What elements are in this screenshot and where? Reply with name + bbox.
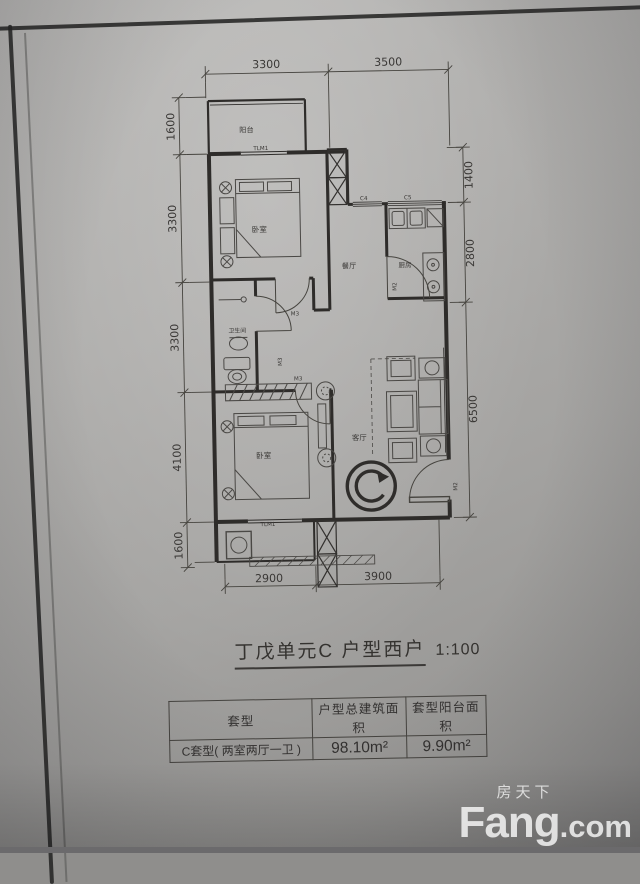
room-label-kitchen: 厨房 [398, 260, 412, 269]
label-tlm1-top: TLM1 [252, 146, 268, 152]
dim-bottom-2900: 2900 [255, 572, 283, 586]
room-label-bathroom: 卫生间 [228, 326, 246, 334]
label-tlm1-bottom: TLM1 [259, 522, 275, 528]
dim-left-4100: 4100 [170, 444, 184, 472]
label-c5: C5 [404, 195, 412, 201]
fang-watermark: 房天下 Fang.com [459, 785, 632, 845]
plan-scale: 1:100 [435, 641, 480, 659]
dim-left-1600b: 1600 [172, 532, 186, 560]
cell-total-area: 98.10m² [313, 736, 407, 760]
room-label-bedroom-top: 卧室 [252, 224, 268, 234]
bedroom-top-furniture [219, 178, 301, 268]
room-label-balcony-top: 阳台 [239, 125, 254, 134]
dim-left-3300a: 3300 [166, 205, 180, 233]
photo-background: 3300 3500 1600 3300 3300 4100 1600 1400 … [0, 0, 640, 853]
plan-title: 丁戊单元C 户型西户 [234, 639, 425, 670]
bedroom-bottom-furniture [220, 383, 313, 500]
dim-left-3300b: 3300 [168, 324, 182, 352]
cell-balcony-area: 9.90m² [406, 734, 487, 758]
dim-top-3500: 3500 [374, 55, 402, 69]
dim-left-1600a: 1600 [164, 113, 178, 141]
dim-right-6500: 6500 [467, 395, 481, 423]
fang-watermark-com: .com [560, 809, 632, 844]
room-label-dining: 餐厅 [342, 261, 357, 270]
opening-labels: TLM1 C4 C5 M2 M3 M3 M3 M2 TLM1 [252, 142, 460, 528]
room-label-living: 客厅 [352, 433, 368, 442]
label-c4: C4 [360, 196, 368, 202]
header-total-area: 户型总建筑面积 [312, 697, 406, 738]
dim-top-3300: 3300 [252, 58, 280, 72]
bathroom-fixtures [219, 297, 251, 384]
header-unit-type: 套型 [169, 699, 313, 741]
room-label-bedroom-bottom: 卧室 [256, 450, 272, 460]
photo-bottom-edge [0, 847, 640, 853]
cell-unit-type: C套型( 两室两厅一卫 ) [170, 738, 313, 763]
dim-right-2800: 2800 [464, 239, 478, 267]
dim-bottom-3900: 3900 [364, 570, 392, 584]
plan-title-row: 丁戊单元C 户型西户1:100 [234, 633, 481, 665]
label-m2-entry: M2 [453, 482, 459, 491]
unit-c-mark [347, 462, 396, 511]
header-balcony-area: 套型阳台面积 [405, 695, 486, 736]
fang-watermark-fang: Fang [459, 798, 560, 847]
label-m2-kitchen: M2 [392, 282, 398, 291]
area-table: 套型 户型总建筑面积 套型阳台面积 C套型( 两室两厅一卫 ) 98.10m² … [168, 695, 487, 763]
label-m3-hall-mid: M3 [278, 357, 284, 366]
fang-watermark-logo: Fang.com [459, 801, 632, 845]
living-room-furniture [316, 356, 449, 467]
drawing-sheet: 3300 3500 1600 3300 3300 4100 1600 1400 … [0, 0, 640, 859]
label-m3-bedroom-bottom: M3 [294, 376, 303, 382]
dim-right-1400: 1400 [462, 161, 476, 189]
area-table-header-row: 套型 户型总建筑面积 套型阳台面积 [169, 695, 487, 740]
label-m3-hall-top: M3 [291, 311, 300, 317]
